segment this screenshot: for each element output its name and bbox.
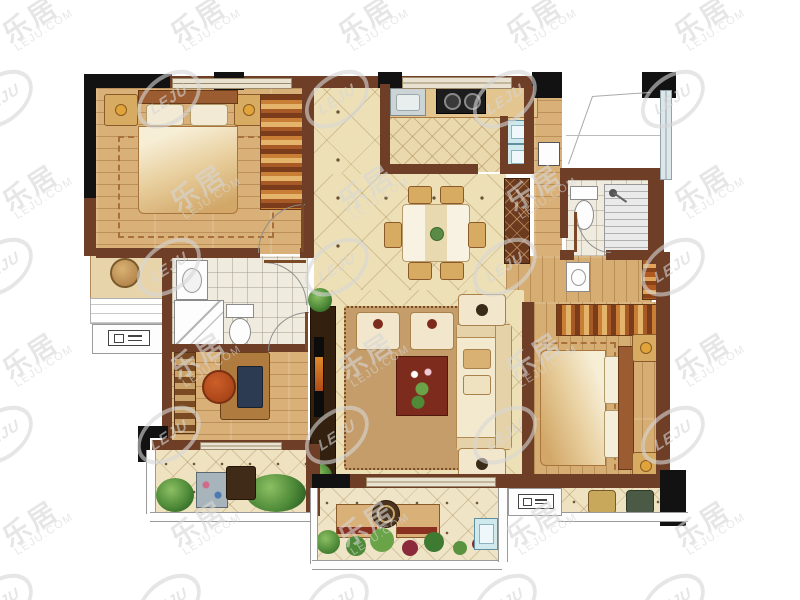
ac-unit-symbol [108,330,150,346]
leju-cjk-text: 乐居 [0,153,65,218]
ac-unit-symbol [518,494,554,509]
window-kitchen [402,77,512,89]
bay-window-left-sill [90,298,170,324]
railing [310,488,318,564]
railing [558,512,688,522]
wall-left-upper [84,86,96,198]
wall-column [532,72,562,98]
leju-domain-text: LEJU.COM [685,175,748,222]
entry-door-leaf [538,142,560,166]
washbasin [176,260,208,300]
stove [436,86,486,114]
leju-logo-oval: LEJU [0,562,41,600]
wall-kitchen-left [380,84,390,174]
wall-master-right [656,262,670,474]
desk-chair [202,370,236,404]
coffee-table [396,356,448,416]
railing [498,488,508,562]
leju-logo-oval: LEJU [128,562,209,600]
window-terrace-door [366,477,496,487]
monitor [237,366,263,408]
terrace-bench [396,504,440,538]
leju-watermark: LEJU乐居LEJU.COM [0,470,129,600]
armchair [356,312,400,350]
wall-kitchen-right [524,86,534,166]
door-leaf [264,260,306,263]
dining-chair [408,186,432,204]
passage-floor [314,88,388,176]
leju-domain-text: LEJU.COM [685,7,748,54]
laundry-basket [110,258,140,288]
wall-kitchen-bottom [380,164,478,174]
wall-master-left [522,302,534,474]
wall-bathroom-main-bottom-a [560,250,574,260]
sideboard-cabinet [504,178,530,264]
door-leaf [574,212,577,252]
leju-domain-text: LEJU.COM [685,343,748,390]
bookshelf [174,352,196,434]
door-leaf [301,204,304,252]
bed-headboard [618,346,634,470]
leju-cjk-text: 乐居 [666,153,738,218]
plant [156,478,194,512]
bed-master [540,346,632,468]
corridor-basin [566,262,590,292]
dining-chair [440,186,464,204]
plant-pot [626,490,654,514]
wall-bathroom-main-right [648,178,664,260]
wall-column [84,74,172,88]
bed-blanket [138,126,238,214]
window-entry-right [660,90,672,180]
leju-domain-text: LEJU.COM [685,511,748,558]
leju-cjk-text: 乐居 [0,0,65,51]
leju-domain-text: LEJU.COM [13,343,76,390]
balcony-table [226,466,256,500]
leju-logo-oval: LEJU [632,562,713,600]
bed-blanket [540,350,606,466]
leju-domain-text: LEJU.COM [13,7,76,54]
terrace-flower-bed [316,530,340,554]
leju-cjk-text: 乐居 [0,489,65,554]
wall-bedroom-secondary-bottom [96,248,260,258]
leju-logo-oval: LEJU [0,226,41,309]
leju-domain-text: LEJU.COM [181,7,244,54]
toilet-secondary [226,304,254,346]
leju-cjk-text: 乐居 [666,321,738,386]
corner-shower [174,300,224,348]
side-table [458,294,506,326]
bed-secondary [138,90,236,214]
leju-logo-oval: LEJU [0,58,41,141]
dining-chair [468,222,486,248]
bed-headboard [138,90,238,104]
door-leaf [305,312,308,350]
foyer-floor [534,88,562,256]
balcony-cabinet [196,472,228,508]
railing [146,450,156,514]
wall-master-bottom [508,474,666,488]
wall-bathroom-main-left [560,180,568,238]
sofa-pillow [463,349,491,369]
armchair [410,312,454,350]
leju-cjk-text: 乐居 [666,0,738,51]
window-study-balcony [200,442,282,450]
dining-table [402,204,470,262]
leju-cjk-text: 乐居 [162,0,234,51]
nightstand-left [104,94,138,126]
terrace-round-table [372,500,400,528]
window-bedroom-secondary [172,78,292,89]
leju-domain-text: LEJU.COM [349,7,412,54]
wall-fridge-nook [500,116,508,166]
leju-cjk-text: 乐居 [498,0,570,51]
leju-cjk-text: 乐居 [0,321,65,386]
entry-court-line [566,135,660,136]
leju-domain-text: LEJU.COM [13,175,76,222]
dining-chair [384,222,402,248]
kitchen-sink [390,88,426,116]
wall-left [84,198,96,256]
leju-domain-text: LEJU.COM [13,511,76,558]
plant [308,288,332,312]
bed-pillow [146,104,184,126]
wall-column [312,474,350,488]
dining-chair [408,262,432,280]
wardrobe-secondary [260,94,306,210]
floor-plan-image: LEJU乐居LEJU.COMLEJU乐居LEJU.COMLEJU乐居LEJU.C… [0,0,800,600]
leju-logo-oval: LEJU [0,394,41,477]
wardrobe-master [556,304,658,336]
plant-pot [588,490,616,514]
leju-cjk-text: 乐居 [330,0,402,51]
bed-pillow [190,104,228,126]
railing [150,512,310,522]
terrace-wash-sink [474,518,498,550]
sofa-pillow [463,375,491,395]
railing [312,560,502,570]
dining-chair [440,262,464,280]
entry-court-area [562,88,662,168]
sofa [456,324,512,450]
leju-domain-text: LEJU.COM [517,7,580,54]
